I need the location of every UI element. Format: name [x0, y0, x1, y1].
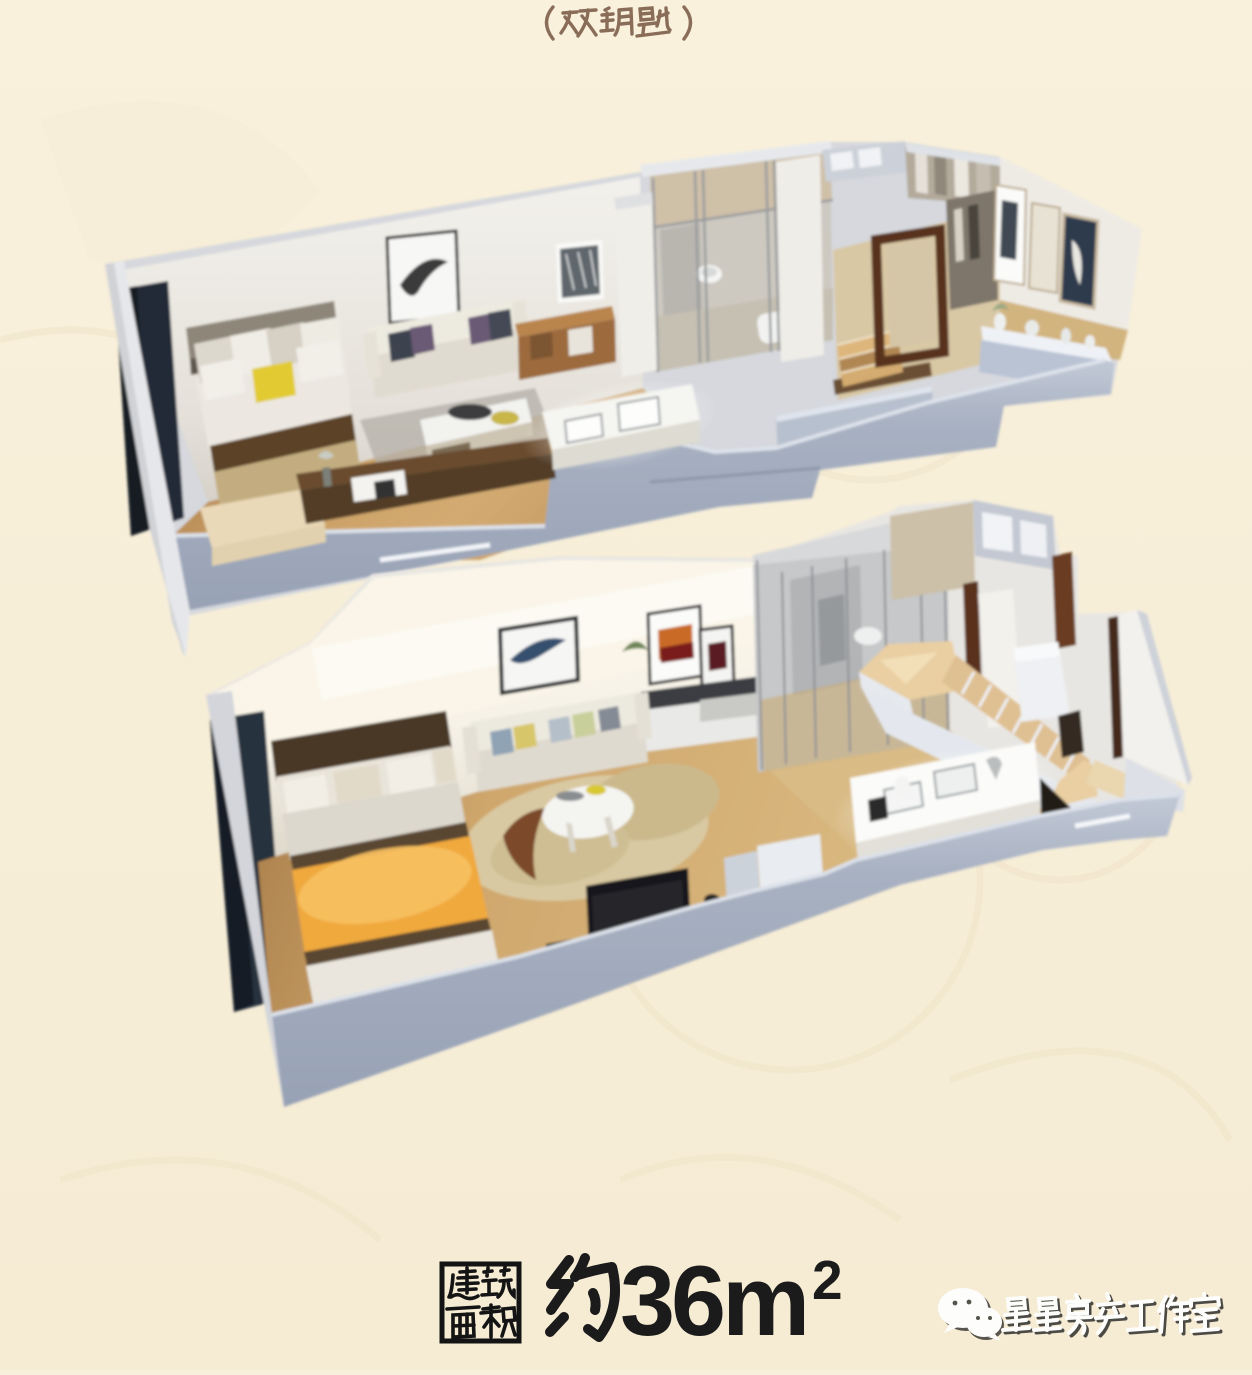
svg-text:2: 2 [812, 1249, 843, 1311]
svg-text:36m: 36m [620, 1245, 806, 1356]
